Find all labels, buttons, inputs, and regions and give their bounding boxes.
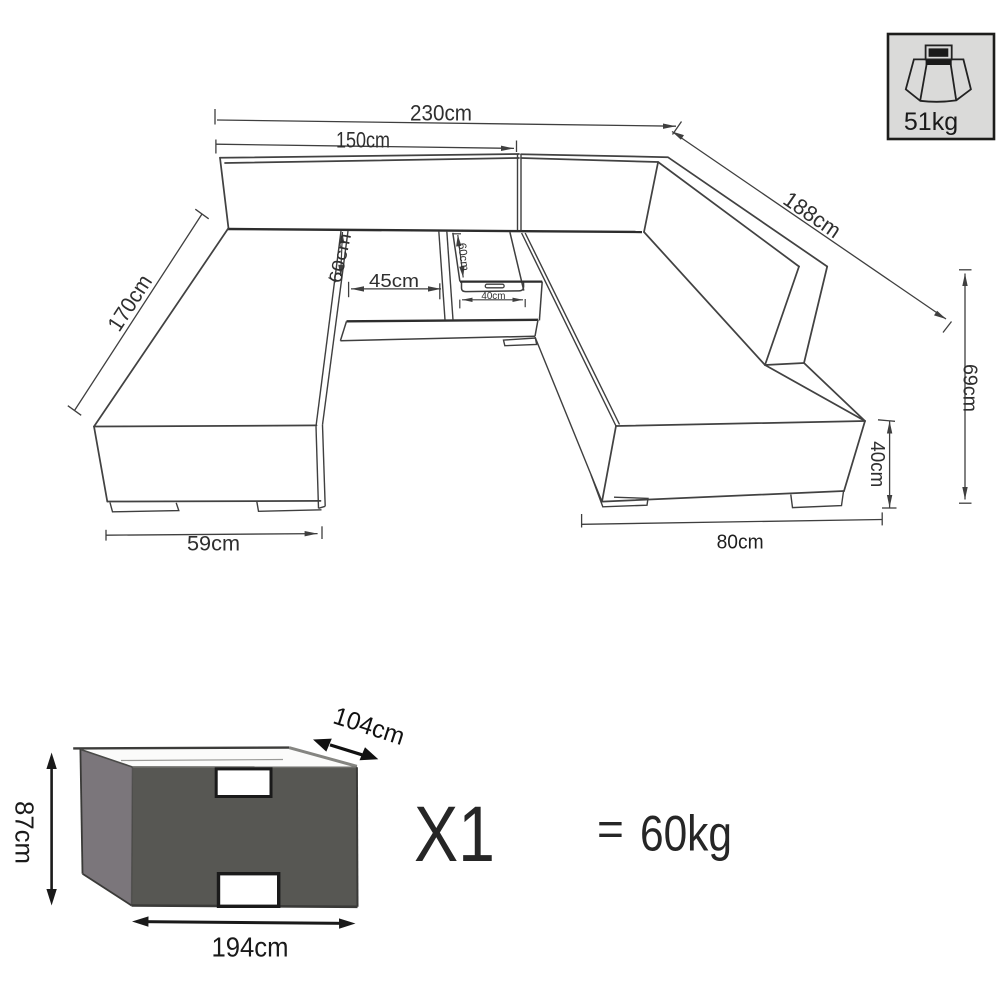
svg-text:80cm: 80cm: [717, 532, 764, 554]
svg-text:230cm: 230cm: [410, 101, 472, 126]
svg-text:X1: X1: [414, 789, 495, 878]
svg-text:60kg: 60kg: [640, 806, 732, 862]
svg-text:59cm: 59cm: [187, 533, 240, 556]
svg-text:40cm: 40cm: [866, 441, 888, 487]
svg-text:51kg: 51kg: [904, 108, 958, 136]
svg-text:45cm: 45cm: [369, 271, 419, 291]
svg-text:150cm: 150cm: [336, 128, 390, 153]
svg-text:=: =: [597, 803, 624, 855]
svg-text:87cm: 87cm: [10, 801, 40, 864]
svg-text:40cm: 40cm: [481, 290, 505, 302]
svg-text:69cm: 69cm: [959, 364, 981, 412]
svg-text:194cm: 194cm: [212, 932, 289, 963]
